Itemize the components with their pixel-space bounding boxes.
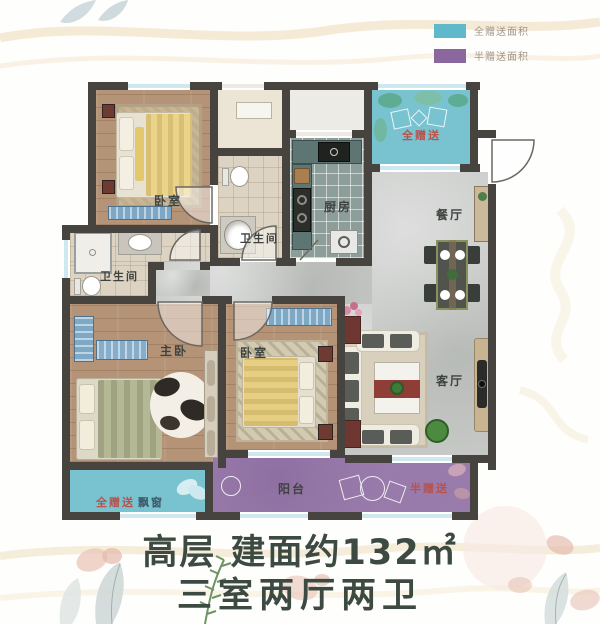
master-dresser — [74, 316, 94, 362]
living-flowers — [355, 309, 362, 316]
plan-title: 高层 建面约132㎡ 三室两厅两卫 — [0, 531, 600, 617]
legend-swatch-full-gift — [434, 24, 466, 38]
bath-left-drain-icon — [89, 249, 96, 256]
living-sofa-cushion — [362, 334, 384, 348]
bedroom-top-pillow — [119, 117, 134, 151]
bedroom-top-nightstand — [102, 104, 115, 118]
dining-chair — [466, 284, 480, 302]
bedroom-mid-dresser — [266, 308, 332, 326]
wall — [364, 82, 372, 262]
master-dresser — [96, 340, 148, 360]
wall — [470, 130, 496, 138]
window — [248, 450, 330, 458]
window — [128, 82, 190, 90]
floor-niche — [290, 90, 364, 130]
sliding-door-window — [392, 455, 452, 463]
wall — [488, 184, 496, 470]
wall — [470, 455, 478, 520]
entry-opening — [488, 138, 496, 184]
kitchen-burner — [297, 213, 307, 223]
wall — [470, 82, 478, 172]
balcony-top-plant — [374, 118, 387, 142]
window — [62, 240, 70, 278]
legend-label-full-gift: 全赠送面积 — [474, 23, 529, 38]
bedroom-top-accent-pillow — [135, 127, 144, 181]
room-label-bath-center: 卫生间 — [240, 230, 279, 246]
legend-item-half-gift: 半赠送面积 — [434, 45, 529, 70]
balcony-top-seat-sketch — [427, 107, 448, 128]
dining-plate — [440, 290, 450, 300]
legend: 全赠送面积 半赠送面积 — [434, 20, 529, 70]
wall — [210, 82, 218, 185]
gift-label-bay: 全赠送 — [96, 494, 135, 510]
balcony-table-sketch — [221, 476, 241, 496]
bedroom-mid-pillow — [299, 362, 314, 390]
living-table-plant — [390, 381, 404, 395]
wall — [282, 130, 290, 266]
master-wardrobe-door — [207, 396, 215, 422]
room-label-kitchen: 厨房 — [324, 198, 352, 215]
wall — [62, 225, 218, 233]
bedroom-top-pillow — [119, 156, 134, 190]
floorplan-page: 全赠送面积 半赠送面积 — [0, 0, 600, 624]
bedroom-mid-nightstand — [318, 346, 333, 362]
wall — [210, 258, 240, 266]
legend-label-half-gift: 半赠送面积 — [474, 48, 529, 63]
wall — [200, 262, 210, 270]
window — [240, 512, 308, 520]
living-sofa-cushion — [390, 430, 412, 444]
living-sofa-cushion — [362, 430, 384, 444]
living-sofa-cushion — [344, 380, 359, 402]
title-line-rooms: 三室两厅两卫 — [0, 575, 600, 617]
title-line-area: 高层 建面约132㎡ — [0, 531, 600, 575]
bedroom-top-duvet — [146, 114, 192, 196]
bedroom-mid-duvet — [244, 358, 298, 426]
living-floor-plant — [425, 419, 449, 443]
room-label-balcony: 阳台 — [278, 480, 306, 497]
living-sofa-cushion — [390, 334, 412, 348]
room-label-master: 主卧 — [160, 342, 188, 359]
dining-plate — [455, 290, 465, 300]
balcony-top-plant — [378, 93, 402, 108]
window — [378, 82, 466, 90]
bedroom-mid-pillow — [299, 396, 314, 424]
room-label-bedroom-mid: 卧室 — [240, 344, 268, 361]
master-wardrobe-door — [207, 360, 215, 386]
dining-plate — [440, 250, 450, 260]
wall — [218, 304, 226, 468]
bath-center-toilet-icon — [230, 166, 249, 187]
gift-label-half: 半赠送 — [410, 480, 449, 496]
wall — [272, 296, 345, 304]
window — [362, 512, 452, 520]
bedroom-top-nightstand — [102, 180, 115, 194]
balcony-table-sketch — [360, 476, 385, 501]
living-tv-lens — [478, 380, 486, 388]
kitchen-washer-door — [338, 236, 350, 248]
kitchen-cutting-board — [294, 168, 310, 184]
room-label-living: 客厅 — [436, 372, 464, 389]
wall — [276, 258, 296, 266]
floor-closet — [218, 90, 282, 148]
master-pillow — [79, 420, 95, 450]
wall — [88, 82, 96, 233]
wall — [337, 296, 345, 458]
window — [296, 130, 352, 138]
window — [120, 512, 196, 520]
bath-center-toilet-tank — [222, 168, 229, 186]
bath-left-sink-icon — [128, 234, 152, 251]
wall — [210, 225, 218, 262]
wall — [282, 90, 290, 138]
wall — [215, 148, 290, 156]
gift-label-top: 全赠送 — [402, 127, 441, 143]
room-label-bay-window: 飘窗 — [138, 494, 164, 510]
master-pillow — [79, 384, 95, 414]
master-wardrobe-door — [207, 430, 215, 456]
balcony-top-plant — [414, 91, 442, 105]
entry-cabinet-plant — [478, 192, 487, 201]
dining-plate — [455, 250, 465, 260]
wall — [202, 296, 232, 304]
legend-item-full-gift: 全赠送面积 — [434, 20, 529, 45]
bedroom-mid-nightstand — [318, 424, 333, 440]
bath-left-toilet-icon — [82, 276, 101, 296]
wall — [62, 296, 156, 304]
wall — [62, 462, 213, 470]
bath-left-toilet-tank — [74, 278, 81, 295]
room-label-dining: 餐厅 — [436, 206, 464, 223]
legend-swatch-half-gift — [434, 49, 466, 63]
dining-chair — [466, 246, 480, 264]
window — [222, 82, 264, 90]
closet-table — [236, 102, 272, 119]
wall — [336, 258, 372, 266]
floor-hall-notch — [156, 270, 210, 296]
living-sofa-cushion — [344, 352, 359, 374]
balcony-top-plant — [448, 94, 468, 107]
dining-centerpiece-plant — [447, 269, 458, 280]
kitchen-sink-basin — [330, 148, 338, 156]
room-label-bath-left: 卫生间 — [100, 268, 139, 284]
window — [380, 164, 460, 172]
room-label-bedroom-top: 卧室 — [154, 192, 182, 209]
kitchen-burner — [297, 195, 307, 205]
